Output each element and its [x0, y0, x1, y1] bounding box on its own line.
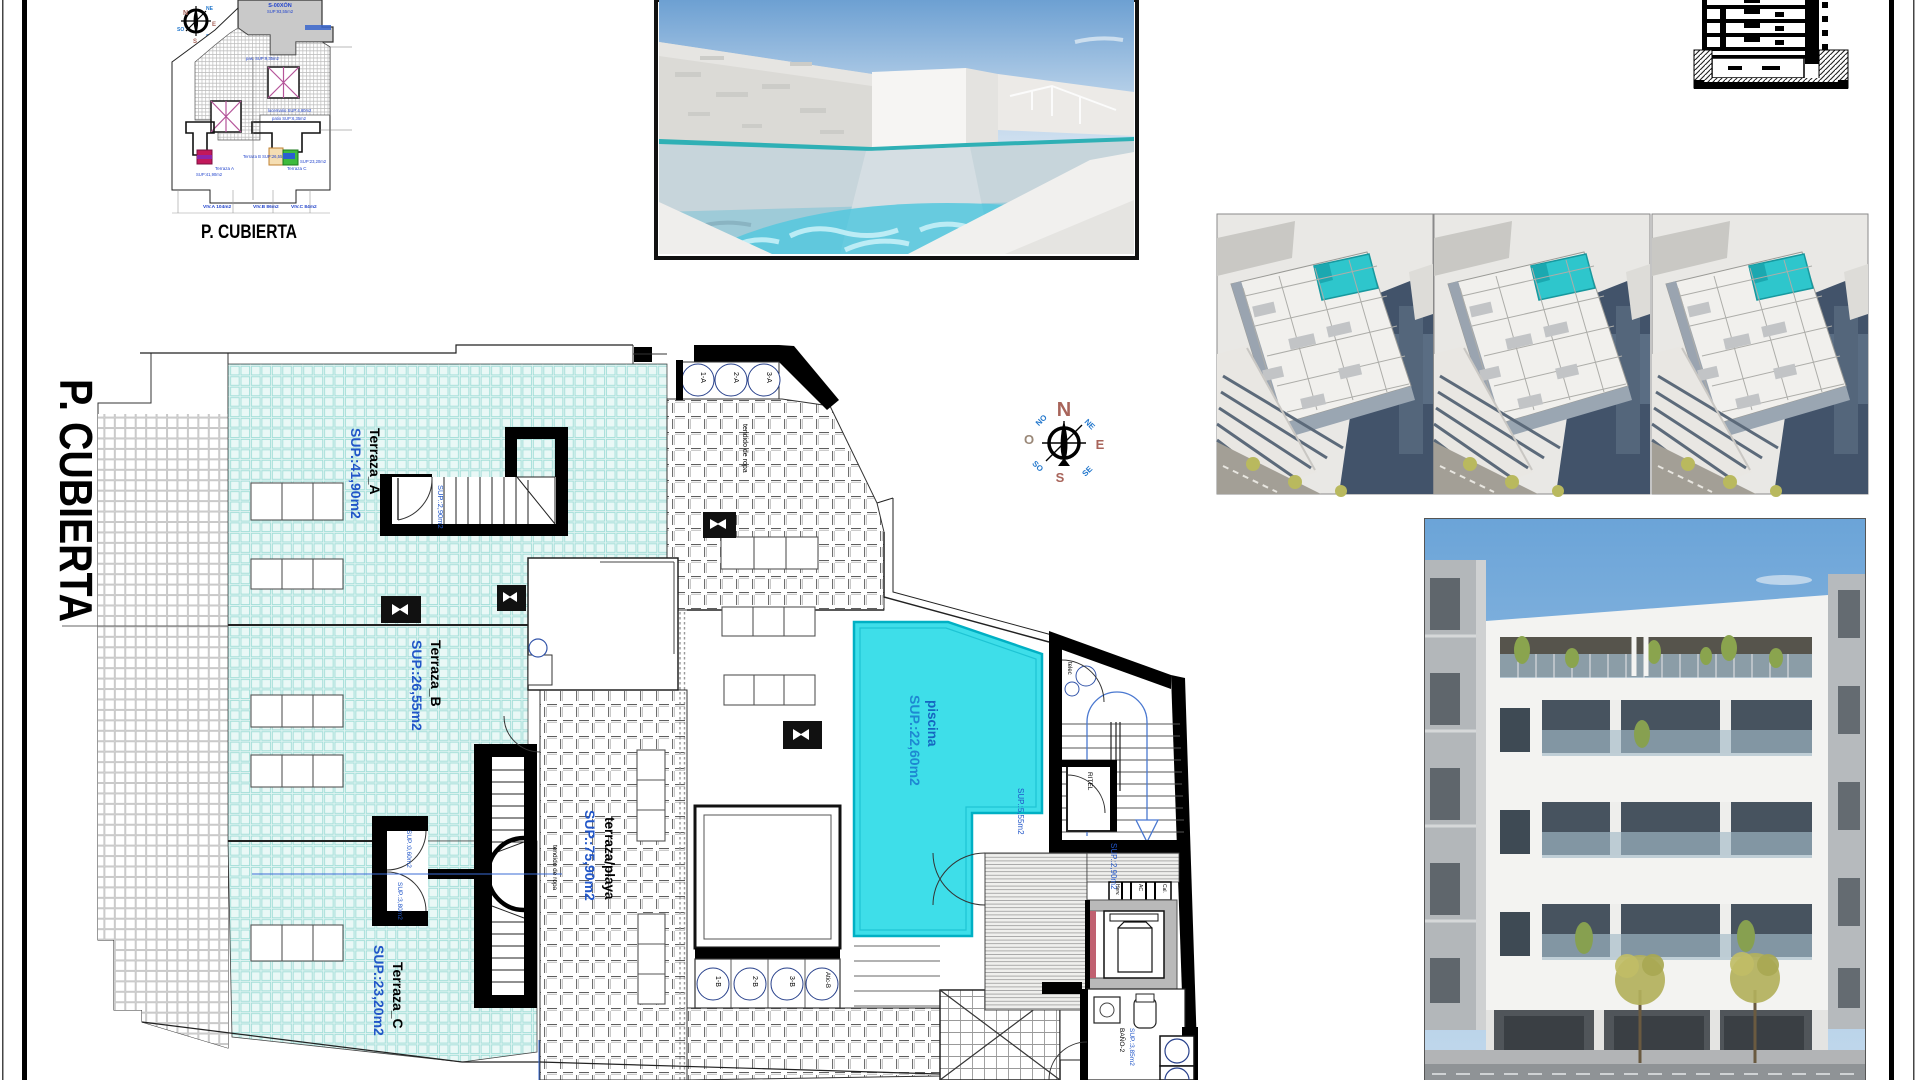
svg-text:E: E: [1096, 437, 1105, 452]
svg-text:P. CUBIERTA: P. CUBIERTA: [201, 222, 297, 243]
svg-text:Terraza_A: Terraza_A: [367, 428, 383, 495]
svg-text:SUP.:22,60m2: SUP.:22,60m2: [907, 695, 923, 786]
svg-text:Herv.: Herv.: [1114, 884, 1120, 896]
svg-text:terraza/playa: terraza/playa: [602, 817, 617, 900]
svg-text:VIV.A 104m2: VIV.A 104m2: [203, 204, 232, 210]
svg-text:E: E: [212, 22, 216, 28]
svg-text:Terraza A: Terraza A: [215, 166, 234, 171]
svg-text:Terraza B SUP:26,55: Terraza B SUP:26,55: [243, 154, 283, 159]
svg-text:SO: SO: [177, 27, 184, 33]
svg-text:VIV.C 84m2: VIV.C 84m2: [291, 204, 317, 210]
svg-text:patio SUP:6,35m2: patio SUP:6,35m2: [272, 116, 307, 121]
svg-text:S: S: [1056, 470, 1065, 485]
svg-text:Terraza_B: Terraza_B: [428, 640, 444, 707]
svg-text:2-A: 2-A: [732, 372, 739, 383]
svg-text:SUP:93,55m2: SUP:93,55m2: [267, 9, 294, 14]
svg-text:Terraza C: Terraza C: [287, 166, 307, 171]
svg-text:NE: NE: [206, 6, 214, 12]
svg-text:RITEL: RITEL: [1086, 772, 1093, 791]
svg-text:SUP.:0,60m2: SUP.:0,60m2: [405, 830, 412, 868]
svg-text:SUP.:3,85m2: SUP.:3,85m2: [1128, 1028, 1135, 1066]
svg-text:SUP.:5,55m2: SUP.:5,55m2: [1016, 788, 1025, 835]
svg-text:SUP.:75,90m2: SUP.:75,90m2: [582, 810, 598, 901]
svg-text:VIV.B 86m2: VIV.B 86m2: [253, 204, 279, 210]
svg-text:3-B: 3-B: [788, 976, 795, 987]
svg-text:1-B: 1-B: [714, 976, 721, 987]
svg-text:N: N: [183, 10, 188, 17]
svg-text:SUP.:3,80m2: SUP.:3,80m2: [396, 882, 403, 920]
svg-text:S-00XÓN: S-00XÓN: [268, 1, 292, 9]
svg-text:SUP.:23,20m2: SUP.:23,20m2: [371, 945, 387, 1036]
svg-text:Cal.: Cal.: [1161, 884, 1167, 893]
svg-text:Terraza_C: Terraza_C: [390, 962, 406, 1029]
svg-text:1-A: 1-A: [699, 372, 706, 383]
svg-text:N: N: [1057, 399, 1071, 421]
svg-text:telec: telec: [1066, 662, 1072, 675]
svg-text:O: O: [1024, 432, 1034, 447]
svg-text:AC: AC: [1137, 884, 1143, 891]
svg-text:pas. SUP:9,35m2: pas. SUP:9,35m2: [246, 56, 279, 61]
svg-text:BAÑO-2: BAÑO-2: [1118, 1028, 1127, 1053]
svg-text:SUP.:26,55m2: SUP.:26,55m2: [409, 640, 425, 731]
svg-text:SUP:23,20m2: SUP:23,20m2: [300, 159, 327, 164]
svg-text:SUP.:2,90m2: SUP.:2,90m2: [436, 485, 445, 529]
svg-text:tendido de ropa: tendido de ropa: [741, 424, 748, 473]
svg-text:lucernario SUP:4,60m2: lucernario SUP:4,60m2: [268, 108, 312, 113]
svg-text:Atic-B: Atic-B: [824, 972, 830, 988]
svg-text:3-A: 3-A: [765, 372, 772, 383]
svg-text:SUP.:41,90m2: SUP.:41,90m2: [348, 428, 364, 519]
svg-text:P. CUBIERTA: P. CUBIERTA: [50, 379, 102, 622]
svg-text:piscina: piscina: [925, 700, 940, 747]
svg-text:2-B: 2-B: [751, 976, 758, 987]
svg-text:SUP:41,90m2: SUP:41,90m2: [196, 172, 223, 177]
svg-text:tendido de ropa: tendido de ropa: [551, 845, 558, 891]
